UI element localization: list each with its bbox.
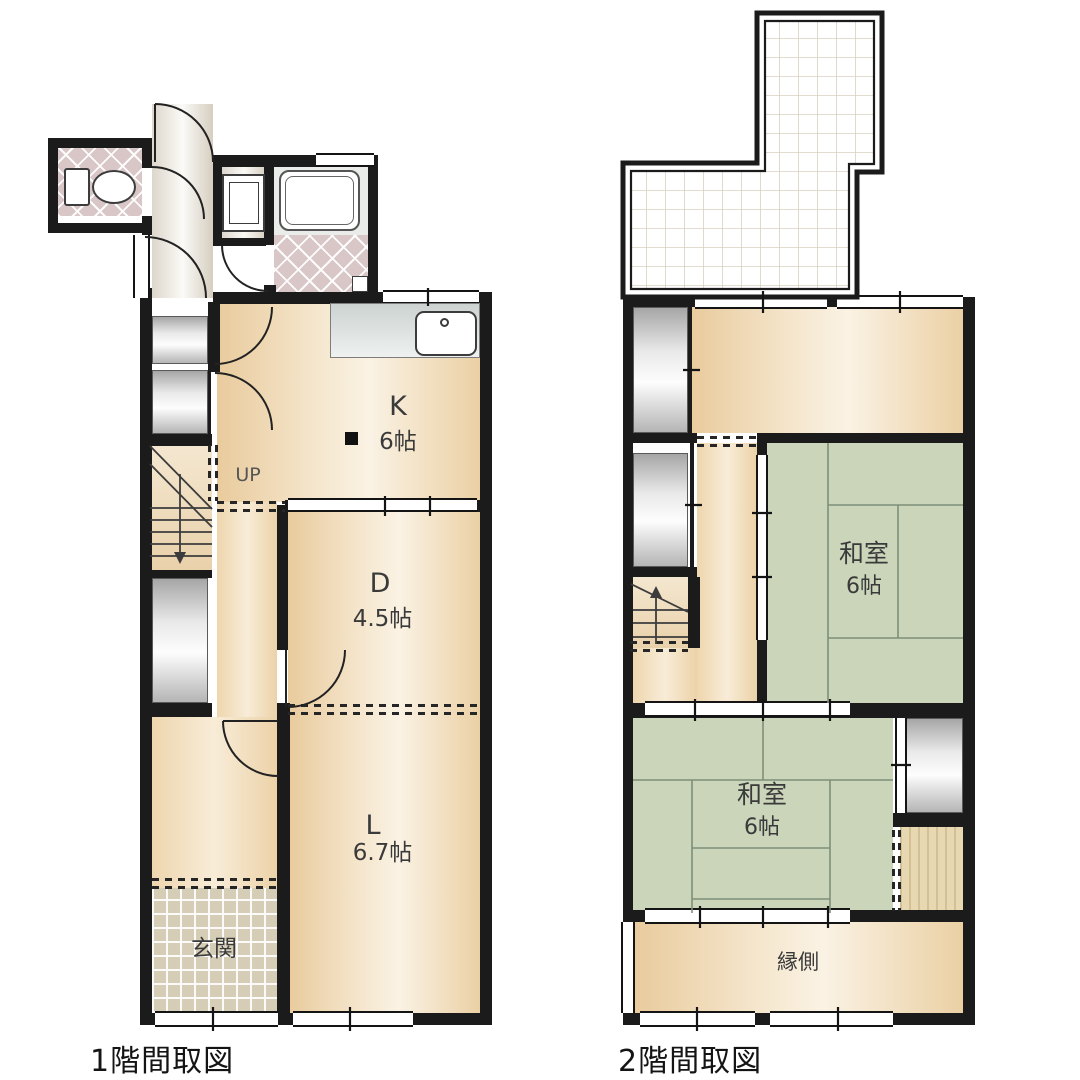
wall — [277, 717, 290, 1013]
window — [316, 153, 374, 167]
sliding-door[interactable] — [288, 498, 477, 512]
closet-sliding-door[interactable] — [895, 718, 907, 813]
window — [770, 1011, 893, 1027]
japanese-room1-label: 和室 — [836, 541, 892, 566]
japanese-room2-size: 6帖 — [737, 817, 787, 839]
opening-dashed — [288, 712, 480, 715]
window — [383, 290, 479, 304]
window — [152, 370, 208, 434]
window — [152, 578, 208, 703]
wall — [368, 155, 378, 302]
wall — [213, 155, 222, 238]
wall — [208, 302, 211, 434]
floorplan-canvas: K 6帖 D 4.5帖 L 6.7帖 玄関 UP — [0, 0, 1080, 1080]
fusuma-sliding-door[interactable] — [756, 455, 768, 640]
wall — [48, 223, 152, 233]
window — [837, 295, 963, 309]
opening-dashed — [630, 641, 688, 644]
sliding-door[interactable] — [645, 908, 850, 924]
wall — [150, 434, 212, 446]
wall — [210, 302, 220, 372]
kitchen-marker — [345, 432, 358, 445]
wall — [140, 298, 152, 1025]
sliding-door[interactable] — [645, 701, 850, 717]
wall — [893, 813, 975, 827]
opening-dashed — [892, 830, 895, 911]
bathtub-inner — [285, 176, 354, 225]
corridor-2f-floor — [697, 443, 757, 705]
japanese-room2-label: 和室 — [734, 782, 790, 807]
opening-dashed — [697, 436, 757, 439]
opening-dashed — [898, 830, 901, 911]
dining-label: D — [360, 570, 400, 597]
wall — [48, 138, 58, 233]
wall — [688, 577, 700, 648]
wall — [623, 567, 697, 577]
window — [133, 235, 150, 298]
wall — [827, 297, 837, 307]
wall — [623, 433, 697, 443]
wall — [213, 238, 266, 246]
opening-dashed — [208, 445, 211, 501]
wall — [142, 216, 152, 235]
dining-size: 4.5帖 — [340, 608, 425, 631]
stairs-floor-1f — [150, 446, 212, 570]
opening-dashed — [152, 878, 277, 881]
toilet-tank — [64, 168, 90, 206]
closet — [905, 718, 963, 813]
entrance-sliding-door[interactable] — [155, 1011, 278, 1027]
corridor-2f-lower-floor — [633, 648, 697, 705]
wall — [148, 703, 212, 717]
wall — [755, 1013, 770, 1025]
veranda-label: 縁側 — [774, 952, 822, 973]
wall — [690, 443, 694, 567]
opening-dashed — [152, 886, 277, 889]
stairs-up-label: UP — [228, 466, 268, 485]
living-label: L — [355, 812, 391, 839]
kitchen-size: 6帖 — [368, 431, 428, 454]
wall — [150, 570, 212, 578]
japanese-room1-floor — [767, 443, 963, 703]
window — [640, 1011, 755, 1027]
opening-dashed — [217, 509, 285, 512]
upper-room-floor — [690, 307, 963, 433]
entrance-hall-floor — [152, 717, 277, 888]
opening-dashed — [630, 649, 688, 652]
hallway-floor — [152, 104, 213, 298]
window — [152, 316, 208, 364]
stairs-floor-2f — [633, 577, 688, 648]
balcony-outline — [623, 13, 882, 297]
wall — [277, 505, 288, 650]
balcony-label: バルコニー — [672, 222, 812, 245]
wall — [142, 138, 152, 168]
window — [293, 1011, 413, 1027]
washbasin-bowl — [229, 182, 259, 224]
opening-dashed — [288, 704, 480, 707]
wall — [688, 307, 692, 433]
bathroom-drain — [352, 276, 368, 292]
mid-corridor-floor — [217, 502, 277, 717]
wall — [757, 433, 963, 443]
kitchen-label: K — [380, 393, 416, 420]
wall — [48, 138, 152, 148]
wall — [480, 292, 492, 1025]
japanese-room1-size: 6帖 — [839, 576, 889, 598]
opening-dashed — [697, 444, 757, 447]
living-size: 6.7帖 — [340, 842, 425, 865]
window — [633, 307, 688, 433]
wall — [264, 160, 274, 245]
window — [621, 922, 635, 1013]
floor2-title: 2階間取図 — [618, 1036, 762, 1080]
opening-dashed — [217, 501, 285, 504]
kitchen-faucet — [440, 318, 449, 327]
window — [695, 295, 827, 309]
window — [633, 453, 688, 567]
floor1-title: 1階間取図 — [90, 1036, 234, 1080]
wall — [623, 297, 633, 913]
toilet-bowl — [92, 170, 136, 204]
opening-dashed — [215, 445, 218, 501]
oshiire-closet — [900, 827, 963, 913]
entrance-label: 玄関 — [178, 938, 250, 961]
